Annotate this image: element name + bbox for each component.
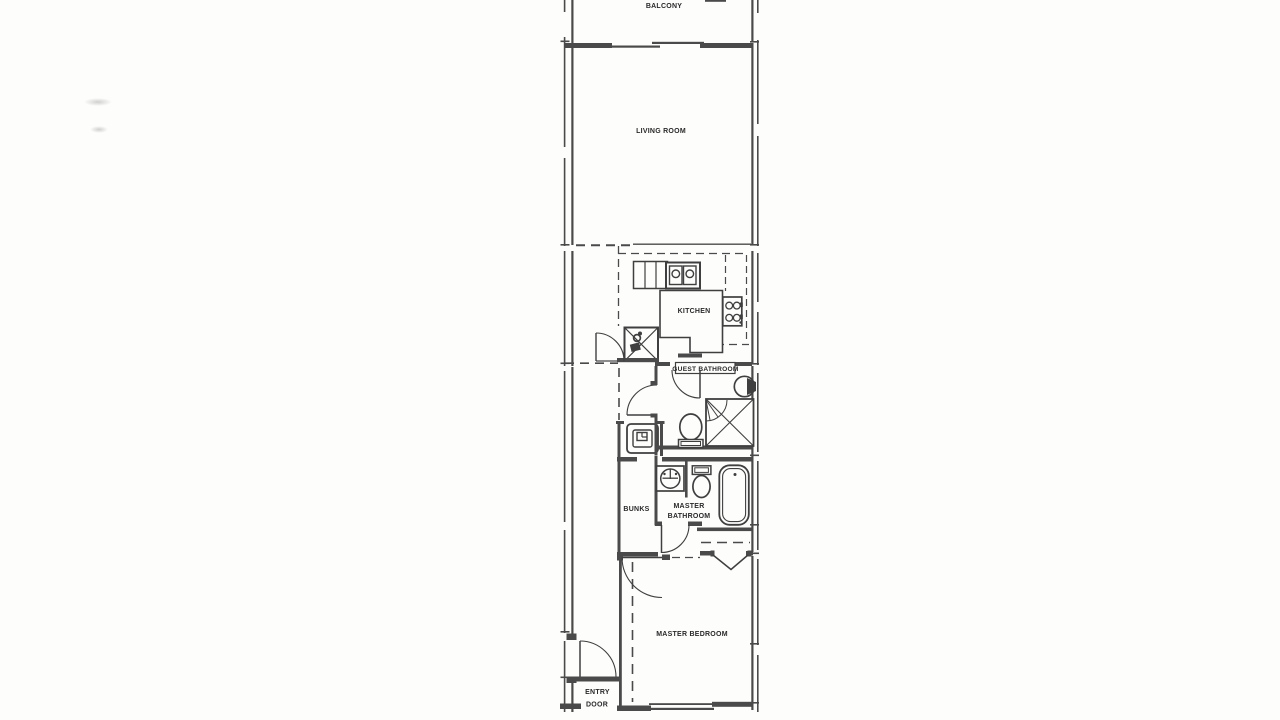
kitchen-counter	[634, 262, 668, 289]
range-cooktop-icon	[723, 297, 743, 326]
guest-toilet-icon	[679, 414, 704, 448]
guest-bathroom-door-swing	[672, 370, 700, 398]
master-bathroom-label-line2: BATHROOM	[668, 513, 711, 520]
master-vanity-sink-icon	[657, 466, 685, 491]
sliding-glass-door-icon	[608, 42, 704, 48]
floor-plan-page: BALCONY LIVING ROOM	[0, 0, 1280, 720]
kitchen-label: KITCHEN	[678, 308, 711, 315]
bedroom-window	[617, 702, 753, 711]
master-bedroom-door-swing	[622, 558, 662, 598]
living-room-label: LIVING ROOM	[636, 128, 686, 135]
closet-door-swing	[596, 333, 624, 361]
master-bathroom-area: MASTER BATHROOM	[655, 462, 753, 570]
living-room-area: LIVING ROOM	[576, 128, 751, 245]
kitchen-area: KITCHEN	[596, 246, 749, 362]
entry-door-label-line1: ENTRY	[585, 689, 610, 696]
master-bathroom-door-swing	[662, 525, 690, 553]
bifold-door-icon	[713, 555, 748, 570]
bifold-closet	[697, 528, 753, 570]
master-bedroom-label: MASTER BEDROOM	[656, 631, 728, 638]
hall-door-swing	[627, 385, 657, 415]
entry-door-swing	[580, 641, 616, 677]
corner-shower-icon	[706, 399, 754, 446]
guest-bathroom-area: GUEST BATHROOM	[651, 362, 757, 455]
bunks-label: BUNKS	[623, 506, 649, 513]
kitchen-island	[660, 291, 723, 353]
bathtub-icon	[719, 465, 749, 525]
master-bedroom-area: MASTER BEDROOM	[617, 555, 753, 712]
floor-plan-drawing: BALCONY LIVING ROOM	[0, 0, 1280, 720]
entry-door-label-line2: DOOR	[586, 702, 608, 709]
guest-sink-icon	[734, 376, 756, 396]
exterior-walls	[561, 0, 760, 712]
entry-area: ENTRY DOOR	[560, 634, 621, 710]
master-toilet-icon	[692, 466, 711, 498]
kitchen-double-sink-icon	[666, 263, 700, 289]
balcony-label: BALCONY	[646, 3, 682, 10]
hallway	[565, 363, 665, 456]
kitchen-partition-wall	[678, 354, 702, 358]
master-bathroom-label-line1: MASTER	[673, 503, 704, 510]
guest-bathroom-label: GUEST BATHROOM	[672, 366, 739, 373]
water-heater-closet-icon	[625, 328, 659, 362]
balcony-area: BALCONY	[564, 3, 754, 48]
